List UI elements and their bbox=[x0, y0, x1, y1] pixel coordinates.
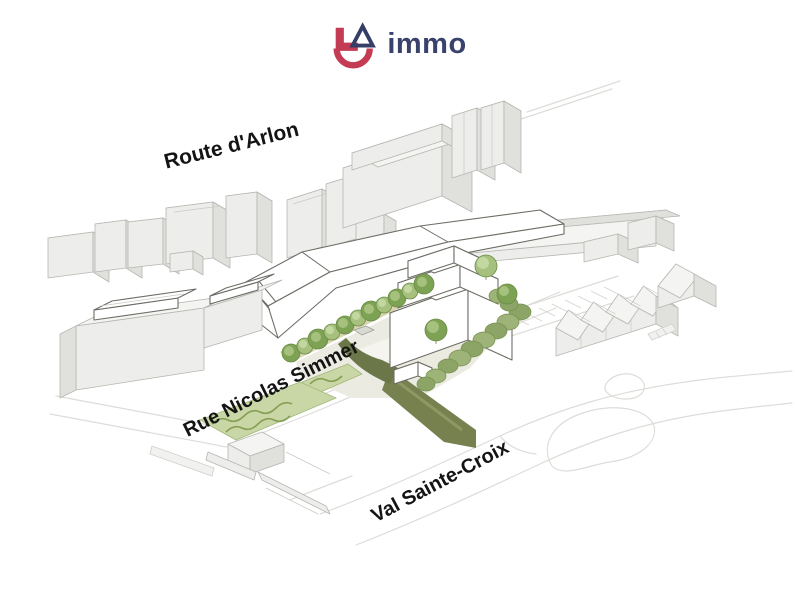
buildings-route-arlon-row bbox=[48, 192, 272, 282]
detached-house bbox=[658, 264, 716, 308]
street-label-val-sainte-croix: Val Sainte-Croix bbox=[368, 436, 513, 527]
page-root: immo bbox=[0, 0, 795, 596]
site-plan-illustration: Route d'Arlon Rue Nicolas Simmer Val Sai… bbox=[0, 0, 795, 596]
building-with-ramps bbox=[150, 432, 330, 514]
street-label-route-arlon: Route d'Arlon bbox=[162, 118, 301, 174]
building-southwest-block bbox=[60, 274, 282, 398]
building-top-center bbox=[343, 101, 521, 228]
